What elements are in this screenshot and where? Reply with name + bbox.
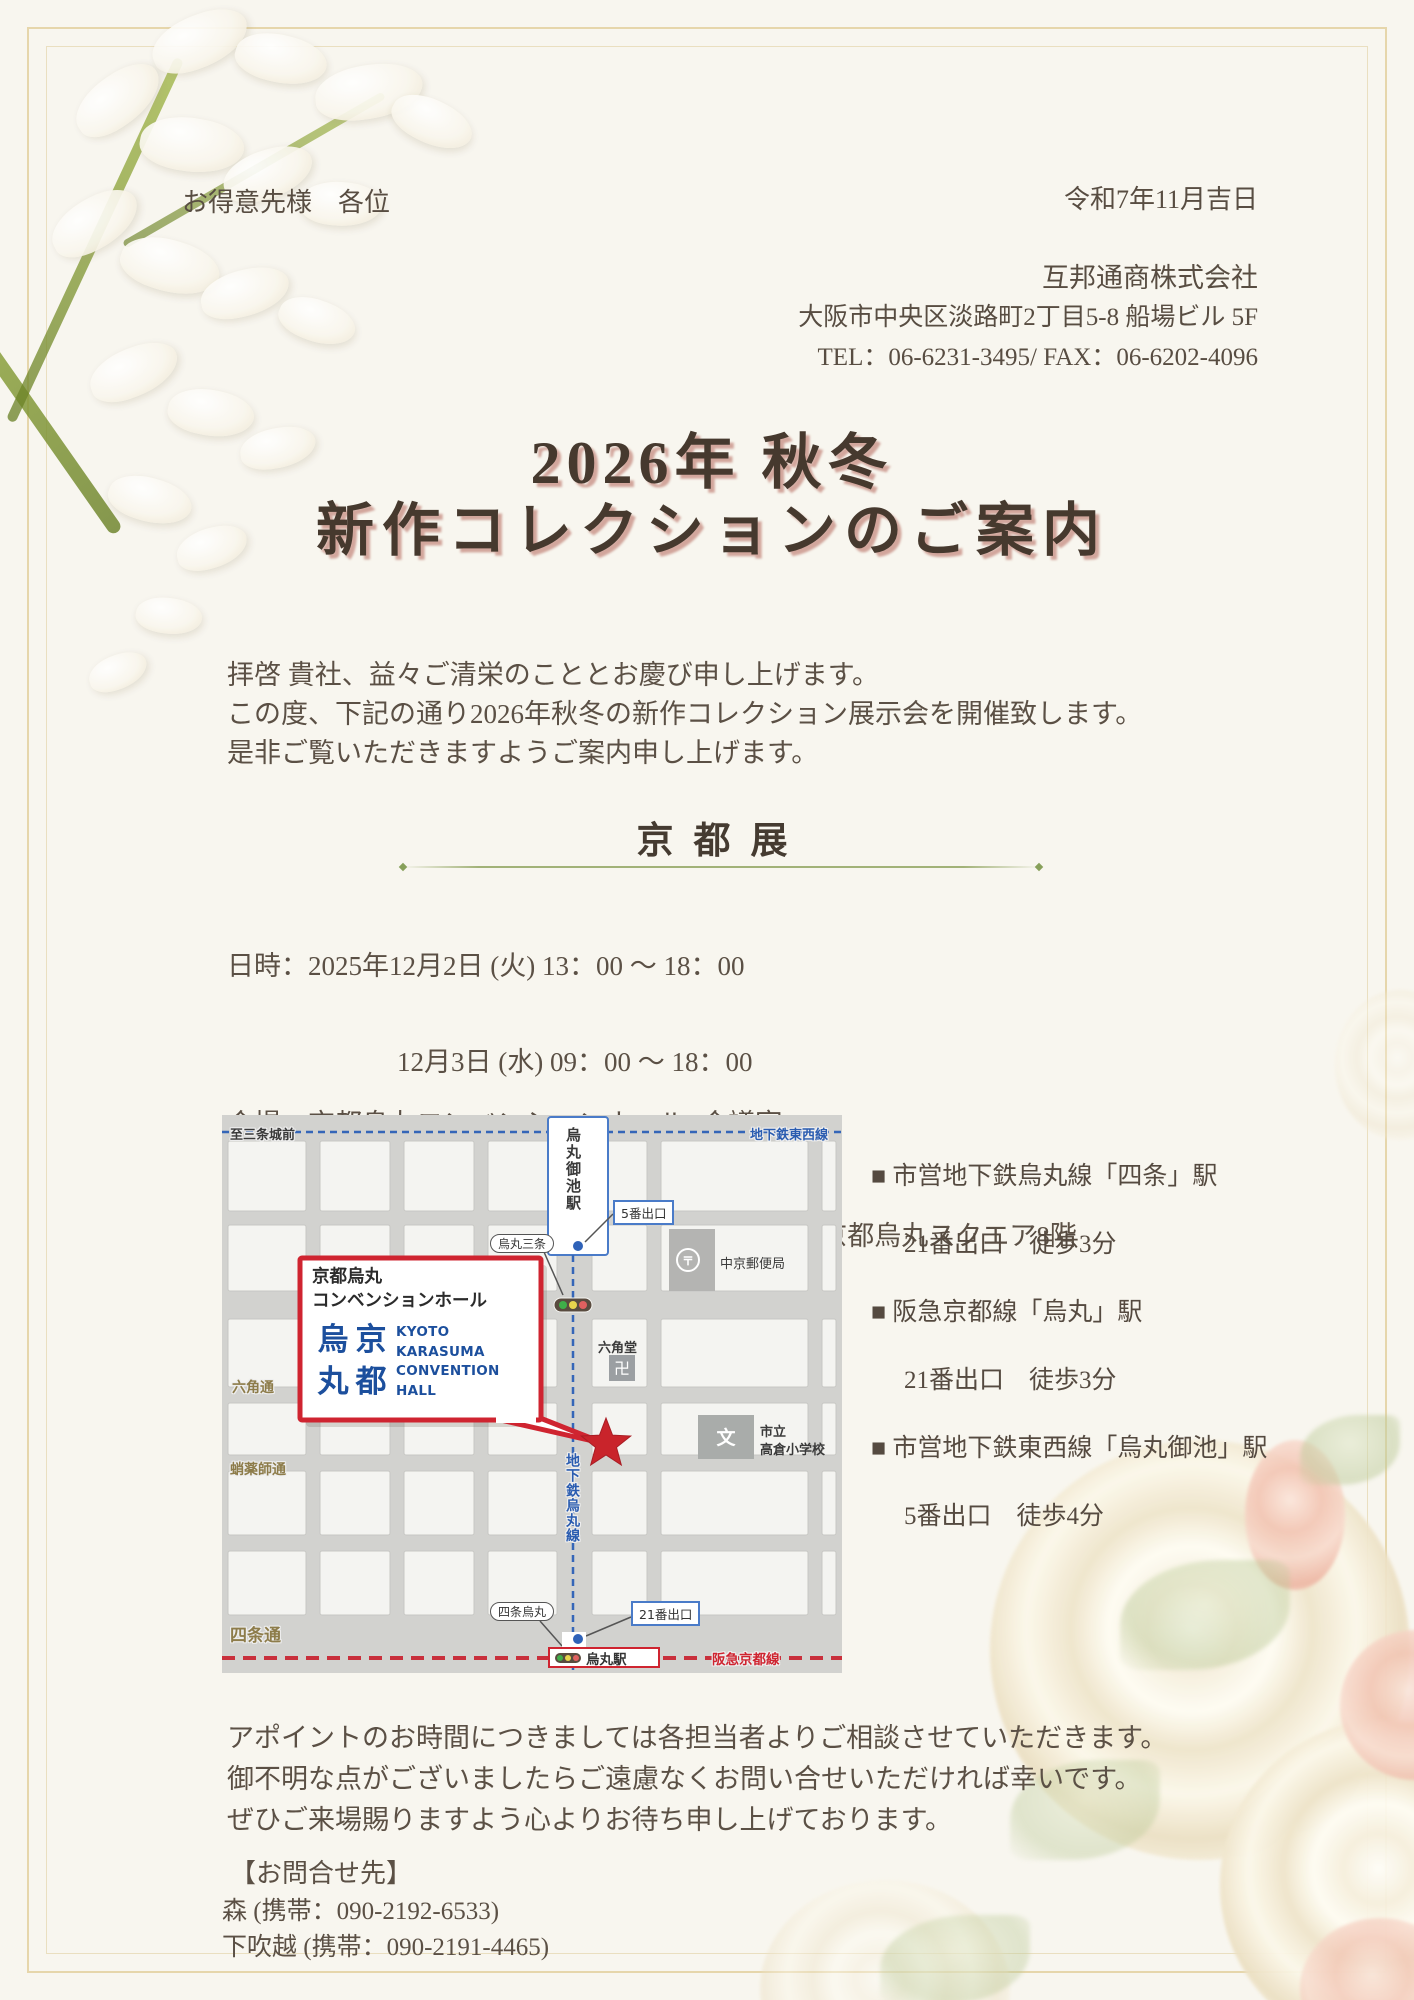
- access-station: ■ 市営地下鉄烏丸線「四条」駅: [871, 1160, 1267, 1194]
- hall-name-line-2: コンベンションホール: [312, 1290, 534, 1314]
- map-label-karasuma-oike-station: 烏丸御池駅: [563, 1127, 584, 1212]
- map-label-hankyu-line: 阪急京都線: [712, 1648, 780, 1668]
- access-exit: 5番出口 徒歩4分: [871, 1500, 1267, 1534]
- logo-en-line: HALL: [396, 1382, 500, 1402]
- map-city-block: [822, 1141, 836, 1211]
- heading-divider: [402, 866, 1040, 868]
- map-city-block: [228, 1551, 306, 1615]
- map-city-block: [488, 1471, 557, 1535]
- greeting-paragraph: 拝啓 貴社、益々ご清栄のこととお慶び申し上げます。 この度、下記の通り2026年…: [227, 656, 1142, 773]
- map-city-block: [822, 1551, 836, 1615]
- exhibition-heading: 京都展: [10, 810, 1414, 864]
- recipient-line: お得意先様 各位: [182, 182, 390, 219]
- access-station: ■ 市営地下鉄東西線「烏丸御池」駅: [871, 1432, 1267, 1466]
- map-label-karasuma-subway-line: 地下鉄烏丸線: [562, 1453, 582, 1543]
- schedule-line: 日時：2025年12月2日 (火) 13：00 ～ 18：00: [227, 942, 752, 990]
- map-city-block: [488, 1141, 557, 1211]
- map-label-karasuma-station: 烏丸駅: [586, 1648, 627, 1668]
- exit5-dot: [573, 1241, 583, 1251]
- map-label-rokkaku-street: 六角通: [232, 1377, 274, 1397]
- map-city-block: [822, 1225, 836, 1291]
- map-label-exit5: 5番出口: [613, 1200, 674, 1225]
- letter-content: お得意先様 各位 令和7年11月吉日 互邦通商株式会社 大阪市中央区淡路町2丁目…: [0, 0, 1414, 2000]
- logo-en-line: CONVENTION: [396, 1362, 500, 1382]
- company-tel-fax: TEL：06-6231-3495/ FAX：06-6202-4096: [798, 338, 1258, 378]
- manji-temple-icon: 卍: [614, 1359, 630, 1378]
- callout-joint: [496, 1414, 536, 1423]
- sender-block: 令和7年11月吉日 互邦通商株式会社 大阪市中央区淡路町2丁目5-8 船場ビル …: [798, 180, 1258, 378]
- map-city-block: [822, 1319, 836, 1387]
- map-label-rokkakudo: 六角堂: [598, 1337, 637, 1356]
- logo-en-line: KARASUMA: [396, 1343, 500, 1363]
- access-station: ■ 阪急京都線「烏丸」駅: [871, 1296, 1267, 1330]
- hall-callout-name: 京都烏丸 コンベンションホール: [312, 1266, 534, 1313]
- map-label-exit21: 21番出口: [631, 1601, 700, 1626]
- document-title: 2026年 秋冬 新作コレクションのご案内: [10, 430, 1414, 564]
- map-city-block: [661, 1141, 808, 1211]
- map-label-to-nijojo: 至三条城前: [230, 1124, 295, 1143]
- closing-line: 御不明な点がございましたらご遠慮なくお問い合せいただければ幸いです。: [227, 1759, 1167, 1800]
- traffic-light-icon: [555, 1653, 581, 1663]
- map-city-block: [228, 1141, 306, 1211]
- map-label-post-office: 中京郵便局: [720, 1253, 785, 1272]
- contact-person: 下吹越 (携帯：090-2191-4465): [222, 1930, 549, 1966]
- greeting-line: この度、下記の通り2026年秋冬の新作コレクション展示会を開催致します。: [227, 695, 1142, 734]
- access-map: 〒 卍 文: [222, 1115, 842, 1673]
- map-city-block: [228, 1225, 306, 1291]
- logo-kanji: 丸: [314, 1361, 352, 1403]
- logo-en-line: KYOTO: [396, 1323, 500, 1343]
- hall-name-line-1: 京都烏丸: [312, 1266, 534, 1290]
- map-city-block: [320, 1471, 390, 1535]
- map-city-block: [320, 1141, 390, 1211]
- traffic-light-icon: [554, 1298, 592, 1312]
- map-label-karasuma-sanjo: 烏丸三条: [490, 1234, 554, 1253]
- post-mark-icon: 〒: [682, 1254, 694, 1268]
- karasuma-station-box: 烏丸駅: [548, 1647, 660, 1668]
- map-label-tozai-line: 地下鉄東西線: [750, 1124, 828, 1143]
- logo-kanji: 都: [352, 1361, 390, 1403]
- map-city-block: [404, 1551, 474, 1615]
- map-city-block: [822, 1471, 836, 1535]
- map-label-shijo-karasuma: 四条烏丸: [490, 1602, 554, 1621]
- map-city-block: [592, 1471, 647, 1535]
- contact-heading: 【お問合せ先】: [222, 1856, 549, 1892]
- access-info-list: ■ 市営地下鉄烏丸線「四条」駅 21番出口 徒歩3分 ■ 阪急京都線「烏丸」駅 …: [871, 1126, 1267, 1568]
- exit21-dot: [573, 1634, 583, 1644]
- company-name: 互邦通商株式会社: [798, 258, 1258, 298]
- map-label-shijo-street: 四条通: [230, 1621, 281, 1646]
- logo-kanji: 京: [352, 1319, 390, 1361]
- contact-person: 森 (携帯：090-2192-6533): [222, 1894, 549, 1930]
- map-city-block: [661, 1471, 808, 1535]
- hall-logo-english: KYOTO KARASUMA CONVENTION HALL: [396, 1323, 500, 1401]
- map-label-takoyakushi-street: 蛸薬師通: [230, 1459, 286, 1479]
- greeting-line: 是非ご覧いただきますようご案内申し上げます。: [227, 734, 1142, 773]
- map-city-block: [404, 1141, 474, 1211]
- company-address: 大阪市中央区淡路町2丁目5-8 船場ビル 5F: [798, 298, 1258, 338]
- contact-block: 【お問合せ先】 森 (携帯：090-2192-6533) 下吹越 (携帯：090…: [222, 1856, 549, 1966]
- access-exit: 21番出口 徒歩3分: [871, 1228, 1267, 1262]
- hall-logo-kanji: 烏 京 丸 都: [314, 1319, 390, 1403]
- map-city-block: [228, 1471, 306, 1535]
- closing-line: ぜひご来場賜りますよう心よりお待ち申し上げております。: [227, 1800, 1167, 1841]
- map-label-school-2: 高倉小学校: [760, 1439, 825, 1458]
- invitation-letter-page: お得意先様 各位 令和7年11月吉日 互邦通商株式会社 大阪市中央区淡路町2丁目…: [0, 0, 1414, 2000]
- greeting-line: 拝啓 貴社、益々ご清栄のこととお慶び申し上げます。: [227, 656, 1142, 695]
- map-city-block: [661, 1319, 808, 1387]
- closing-paragraph: アポイントのお時間につきましては各担当者よりご相談させていただきます。 御不明な…: [227, 1718, 1167, 1841]
- issue-date: 令和7年11月吉日: [798, 180, 1258, 220]
- map-city-block: [320, 1551, 390, 1615]
- title-line-1: 2026年 秋冬: [10, 430, 1414, 496]
- logo-kanji: 烏: [314, 1319, 352, 1361]
- access-exit: 21番出口 徒歩3分: [871, 1364, 1267, 1398]
- title-line-2: 新作コレクションのご案内: [10, 498, 1414, 564]
- map-label-school-1: 市立: [760, 1421, 786, 1440]
- closing-line: アポイントのお時間につきましては各担当者よりご相談させていただきます。: [227, 1718, 1167, 1759]
- map-city-block: [228, 1403, 306, 1455]
- map-city-block: [404, 1471, 474, 1535]
- school-mark-icon: 文: [716, 1426, 736, 1449]
